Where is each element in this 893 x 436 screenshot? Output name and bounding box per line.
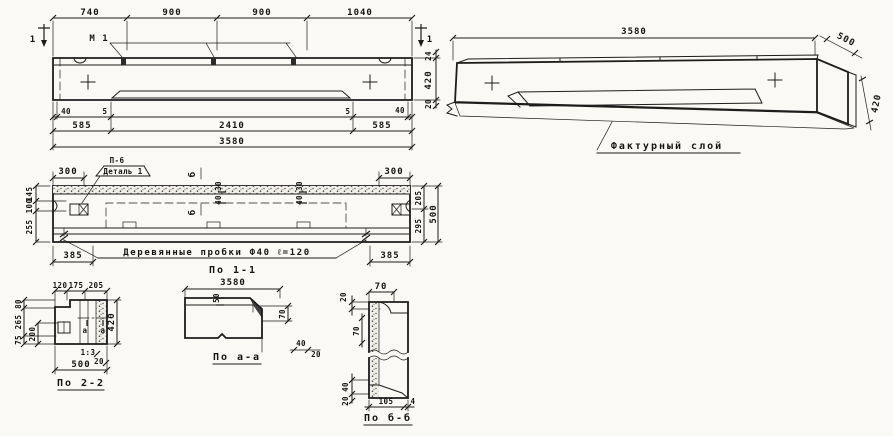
plan-panel-outline: [53, 186, 410, 242]
dim-205: 205: [414, 191, 423, 206]
axon-dims: 3580 500 420: [450, 27, 884, 130]
s22-profile: а а: [55, 300, 112, 344]
dim-420: 420: [424, 70, 434, 89]
slope-1-3: 1:3: [81, 348, 96, 357]
section-title: По 1-1: [209, 265, 257, 276]
dim-5: 5: [103, 107, 108, 116]
dim-740: 740: [80, 8, 99, 18]
lifting-cross-icon: [485, 73, 782, 90]
section-caption: По а-а: [213, 352, 261, 363]
dim-900: 900: [162, 8, 181, 18]
axon-callout: Фактурный слой: [597, 122, 740, 153]
cut-mark-left: 1: [30, 35, 36, 45]
wooden-plugs-note: Деревянные пробки Ф40 ℓ=120: [123, 247, 310, 258]
view-section-1-1: По 1-1 3580 50 70 40 20 По а-а: [182, 265, 321, 364]
dim-105: 105: [379, 397, 394, 406]
elevation-bottom-dims: 40 5 5 40 585 2410 585 3580: [50, 102, 415, 150]
dim-420: 420: [870, 93, 884, 114]
dim-100: 100: [25, 199, 34, 214]
dim-120: 120: [53, 281, 68, 290]
anchor-mark: [291, 58, 296, 65]
cut-mark-right: 1: [427, 35, 433, 45]
insert-mark: [297, 222, 310, 228]
mark-label: М 1: [89, 34, 108, 44]
dim-300: 300: [58, 167, 77, 177]
dim-24: 24: [424, 51, 433, 61]
cut-letter-a: а: [83, 326, 88, 335]
insert-mark: [123, 222, 136, 228]
dim-200: 200: [28, 327, 37, 342]
dim-70: 70: [278, 309, 287, 319]
dim-3580: 3580: [220, 278, 246, 288]
dim-585: 585: [372, 121, 391, 131]
dim-5: 5: [346, 107, 351, 116]
sbb-profile: 70: [352, 302, 408, 398]
dim-40: 40: [395, 106, 405, 115]
dim-20: 20: [341, 396, 350, 406]
dim-300: 300: [384, 167, 403, 177]
section-caption: По б-б: [364, 412, 412, 424]
elevation-mark-callout: М 1: [89, 34, 296, 57]
view-section-2-2: 120 175 205 а а 420 80 265 75: [14, 281, 121, 390]
elevation-top-dims: 740 900 900 1040: [50, 8, 415, 56]
dim-175: 175: [69, 281, 84, 290]
s11-profile: 50: [185, 293, 262, 338]
dim-3580: 3580: [219, 137, 245, 147]
dim-70: 70: [375, 282, 388, 292]
view-plan: б б 30 40 30 40 П-6 Деталь 1 Деревянные …: [25, 156, 442, 266]
lifting-cross-icon: [81, 75, 377, 89]
dim-75: 75: [14, 335, 23, 345]
s22-bottom-dims: 1:3 20 500 По 2-2: [52, 346, 110, 390]
view-elevation: М 1 1 1 740 900 900 1040 24 420: [30, 8, 440, 150]
section-caption: По 2-2: [57, 378, 105, 389]
dim-500: 500: [429, 204, 439, 223]
cut-letter-a: а: [101, 326, 106, 335]
drawing-sheet: М 1 1 1 740 900 900 1040 24 420: [0, 0, 893, 436]
dim-20: 20: [311, 350, 321, 359]
facture-strip: [53, 186, 410, 194]
dim-500: 500: [71, 360, 90, 370]
sbb-top-dims: 70 20: [339, 282, 397, 315]
dim-20: 20: [424, 99, 433, 109]
section-letter-b: б: [187, 209, 198, 215]
facture-strip: [96, 300, 107, 344]
technical-drawing: М 1 1 1 740 900 900 1040 24 420: [0, 0, 893, 436]
dim-500: 500: [835, 31, 857, 49]
detail-label: Деталь 1: [103, 167, 142, 176]
dim-205: 205: [89, 281, 104, 290]
section-letter-b: б: [187, 171, 198, 177]
dim-40: 40: [295, 195, 304, 205]
dim-3580: 3580: [621, 27, 647, 37]
anchor-mark: [211, 58, 216, 65]
dim-385: 385: [63, 251, 82, 261]
dim-2410: 2410: [219, 121, 245, 131]
plan-detail-callout: П-6 Деталь 1: [82, 156, 150, 203]
dim-1040: 1040: [347, 8, 373, 18]
facture-strip: [112, 91, 350, 98]
dim-70-inner: 70: [352, 326, 361, 336]
dim-20: 20: [339, 292, 348, 302]
facture-strip-upper: [369, 302, 379, 352]
dim-295: 295: [414, 219, 423, 234]
dim-4: 4: [411, 397, 416, 406]
dim-40: 40: [61, 107, 71, 116]
dim-30: 30: [295, 181, 304, 191]
dim-40: 40: [214, 195, 223, 205]
facture-end-face: [848, 72, 856, 127]
dim-40: 40: [341, 382, 350, 392]
dim-585: 585: [72, 121, 91, 131]
dim-385: 385: [380, 251, 399, 261]
elevation-panel-outline: [53, 58, 412, 100]
dim-255: 255: [25, 220, 34, 235]
dim-50: 50: [212, 293, 221, 303]
dim-20: 20: [94, 357, 104, 366]
s11-dims-top: 3580: [182, 278, 283, 298]
dim-420: 420: [107, 312, 117, 331]
anchor-mark: [121, 58, 126, 65]
view-section-b-b: 70 20 70 40 20: [339, 282, 416, 425]
facture-layer-label: Фактурный слой: [611, 140, 723, 152]
elevation-right-dims: 24 420 20: [414, 49, 440, 109]
facture-strip-lower: [369, 358, 379, 398]
dim-900: 900: [252, 8, 271, 18]
detail-tag: П-6: [110, 156, 125, 165]
dim-30: 30: [214, 181, 223, 191]
s11-right-dims: 70 40 20: [258, 303, 321, 359]
plan-plug-note: Деревянные пробки Ф40 ℓ=120: [60, 231, 370, 258]
dim-80: 80: [14, 299, 23, 309]
insert-mark: [207, 222, 220, 228]
axon-body: [447, 55, 856, 129]
view-axonometric: 3580 500 420 Фактурный слой: [447, 27, 884, 153]
dim-265: 265: [14, 315, 23, 330]
dim-40: 40: [296, 339, 306, 348]
